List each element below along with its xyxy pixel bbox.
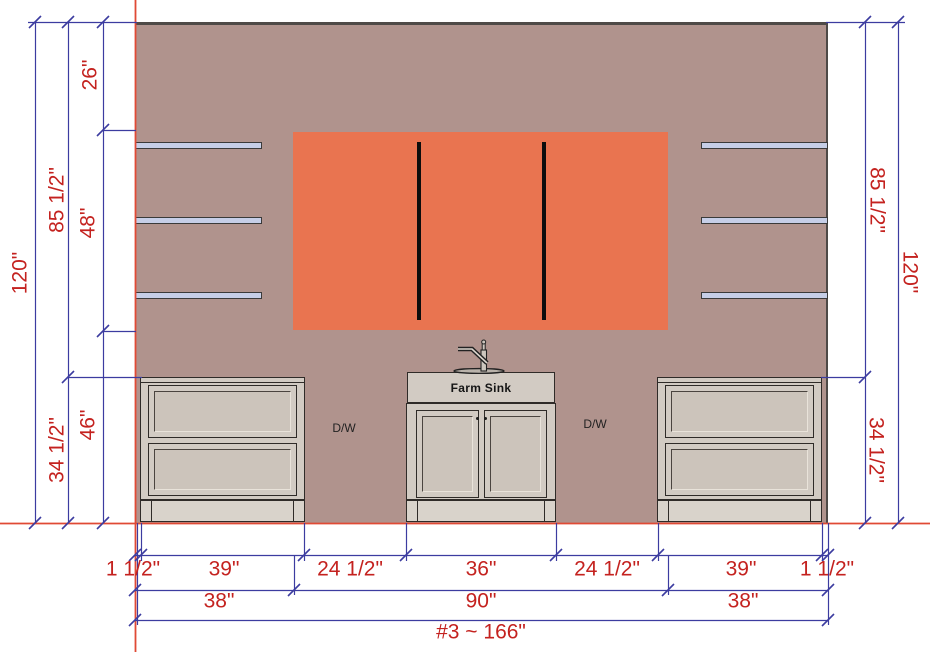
farm-sink-apron: Farm Sink [407,372,555,403]
elevation-drawing: Farm Sink D/W D/W 120"85 1/2"26"48"34 1/… [0,0,930,652]
left-drawer-cabinet [140,377,305,500]
door-panel [422,416,473,492]
dimension-label: 34 1/2" [47,417,68,483]
dimension-label: 85 1/2" [867,167,888,233]
dimension-label: 36" [466,559,497,580]
dimension-label: 120" [900,251,921,294]
dimension-label: 34 1/2" [866,417,887,483]
dimension-label: 48" [78,208,99,239]
window-mullion [542,142,546,320]
drawer-panel [154,449,291,490]
dimension-label: 85 1/2" [47,167,68,233]
left-cabinet-base [140,500,305,522]
dimension-label: 38" [204,591,235,612]
sink-cabinet-base [406,500,556,522]
shelf [135,217,262,224]
dimension-label: 90" [466,591,497,612]
cabinet-door [484,410,547,498]
dimension-label: 24 1/2" [317,559,383,580]
right-cabinet-base [657,500,822,522]
dimension-label: 1 1/2" [800,559,854,580]
drawer-panel [671,391,808,432]
window-mullion [417,142,421,320]
faucet-icon [450,338,510,374]
drawer-front [665,385,814,438]
door-knob [476,417,479,420]
drawer-front [148,385,297,438]
dimension-label: 120" [10,252,31,295]
dishwasher-right-label: D/W [583,417,606,431]
door-panel [490,416,541,492]
drawer-front [148,443,297,496]
shelf [701,292,828,299]
right-drawer-cabinet [657,377,822,500]
dimension-label: 39" [209,559,240,580]
drawer-panel [154,391,291,432]
door-knob [484,417,487,420]
dimension-label: 26" [80,60,101,91]
dimension-label: #3 ~ 166" [436,622,526,643]
dimension-label: 39" [726,559,757,580]
shelf [135,292,262,299]
dimension-label: 38" [728,591,759,612]
shelf [701,217,828,224]
dishwasher-left-label: D/W [332,421,355,435]
cabinet-door [416,410,479,498]
farm-sink-label: Farm Sink [451,381,512,395]
drawer-panel [671,449,808,490]
window-opening [293,132,668,330]
dimension-label: 24 1/2" [574,559,640,580]
drawer-front [665,443,814,496]
dimension-label: 1 1/2" [106,559,160,580]
dimension-label: 46" [78,410,99,441]
farm-sink-cabinet [406,403,556,500]
shelf [135,142,262,149]
shelf [701,142,828,149]
